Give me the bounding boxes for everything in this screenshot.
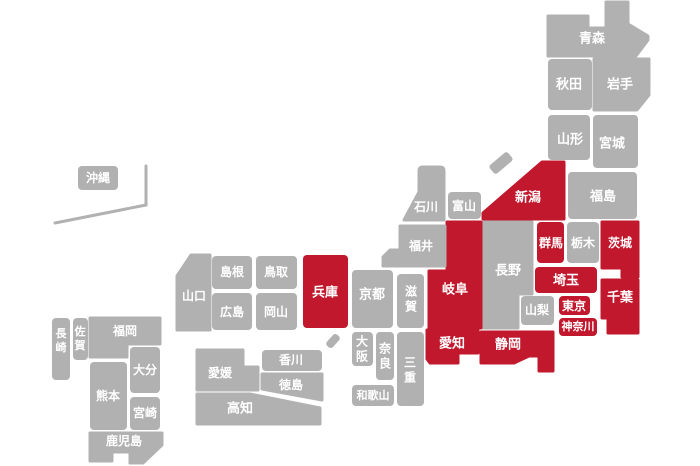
prefecture-label-kanagawa: 神奈川	[562, 319, 595, 333]
prefecture-label-oita: 大分	[133, 362, 157, 377]
prefecture-group-toyama: 富山	[448, 192, 481, 219]
prefecture-group-saitama: 埼玉	[535, 267, 597, 293]
prefecture-group-chiba: 千葉	[602, 280, 638, 333]
prefecture-group-hiroshima: 広島	[212, 293, 252, 330]
prefecture-group-kanagawa: 神奈川	[559, 318, 597, 336]
prefecture-group-kumamoto: 熊本	[90, 362, 127, 430]
prefecture-group-nagasaki: 長崎	[52, 318, 70, 380]
prefecture-label-yamagata: 山形	[557, 132, 583, 147]
prefecture-label-nagano: 長野	[495, 263, 521, 278]
prefecture-label-ishikawa: 石川	[413, 200, 438, 214]
prefecture-group-ehime: 愛媛	[197, 350, 258, 390]
prefecture-label-miyagi: 宮城	[599, 136, 625, 151]
prefecture-label-hiroshima: 広島	[220, 304, 244, 319]
prefecture-label-kagawa: 香川	[278, 352, 303, 367]
prefecture-group-shiga: 滋賀	[397, 274, 424, 328]
sado-island	[488, 151, 513, 175]
prefecture-label-kochi: 高知	[227, 401, 253, 416]
prefecture-group-miyazaki: 宮崎	[130, 397, 160, 430]
prefecture-group-gunma: 群馬	[537, 222, 564, 263]
prefecture-group-tokyo: 東京	[559, 296, 590, 315]
prefecture-group-akita: 秋田	[548, 59, 592, 110]
prefecture-group-kyoto: 京都	[352, 270, 393, 328]
prefecture-label-shizuoka: 静岡	[495, 337, 521, 352]
prefecture-group-ishikawa: 石川	[404, 167, 444, 220]
prefecture-label-gunma: 群馬	[538, 235, 563, 250]
prefecture-label-hyogo: 兵庫	[312, 285, 338, 300]
prefecture-aomori[interactable]	[548, 2, 648, 56]
prefecture-group-okinawa: 沖縄	[78, 166, 118, 190]
prefecture-label-wakayama: 和歌山	[357, 388, 390, 402]
prefecture-label-akita: 秋田	[556, 77, 582, 92]
prefecture-group-yamagata: 山形	[548, 115, 590, 160]
prefecture-group-fukushima: 福島	[568, 172, 637, 219]
prefecture-label-kagoshima: 鹿児島	[106, 433, 142, 448]
prefecture-group-miyagi: 宮城	[593, 115, 638, 168]
prefecture-group-mie: 三重	[397, 332, 424, 406]
prefecture-label-fukuoka: 福岡	[112, 323, 137, 338]
prefecture-group-shimane: 島根	[212, 256, 252, 289]
prefecture-label-chiba: 千葉	[607, 290, 634, 305]
prefecture-label-okinawa: 沖縄	[86, 170, 110, 185]
prefecture-label-shimane: 島根	[220, 264, 244, 279]
prefecture-label-toyama: 富山	[452, 198, 476, 213]
prefecture-label-tottori: 鳥取	[264, 264, 288, 279]
prefecture-label-gifu: 岐阜	[442, 282, 468, 297]
prefecture-saga[interactable]	[73, 318, 88, 360]
prefecture-label-yamanashi: 山梨	[525, 302, 549, 317]
prefecture-label-kumamoto: 熊本	[96, 388, 120, 403]
prefecture-group-tokushima: 徳島	[262, 374, 322, 400]
prefecture-kochi[interactable]	[197, 394, 320, 424]
prefecture-group-osaka: 大阪	[352, 332, 373, 366]
prefecture-group-yamanashi: 山梨	[521, 296, 554, 325]
prefecture-group-tottori: 鳥取	[256, 256, 297, 289]
prefecture-group-shizuoka: 静岡	[481, 332, 553, 371]
prefecture-label-tochigi: 栃木	[571, 235, 596, 250]
prefecture-label-miyazaki: 宮崎	[133, 405, 157, 420]
prefecture-group-kochi: 高知	[197, 394, 320, 424]
prefecture-group-kagawa: 香川	[262, 350, 322, 371]
prefecture-group-aomori: 青森	[548, 2, 648, 56]
prefecture-label-yamaguchi: 山口	[182, 288, 206, 303]
prefecture-group-saga: 佐賀	[73, 318, 88, 360]
prefecture-group-tochigi: 栃木	[567, 222, 599, 263]
prefecture-group-oita: 大分	[130, 347, 160, 393]
prefecture-label-tokyo: 東京	[562, 298, 586, 313]
prefecture-chiba[interactable]	[602, 280, 638, 333]
prefecture-label-niigata: 新潟	[515, 190, 541, 205]
prefecture-group-ibaraki: 茨城	[602, 222, 638, 277]
prefecture-label-fukushima: 福島	[589, 189, 616, 204]
prefecture-group-hyogo: 兵庫	[303, 255, 348, 328]
prefecture-label-fukui: 福井	[408, 238, 433, 253]
prefecture-label-ehime: 愛媛	[208, 365, 233, 380]
prefecture-label-saitama: 埼玉	[553, 273, 579, 288]
prefecture-label-iwate: 岩手	[606, 77, 633, 92]
prefecture-label-tokushima: 徳島	[278, 377, 303, 392]
prefecture-group-wakayama: 和歌山	[352, 385, 394, 406]
prefecture-label-kyoto: 京都	[359, 287, 385, 302]
prefecture-label-okayama: 岡山	[264, 304, 288, 319]
prefecture-group-aichi: 愛知	[427, 330, 478, 363]
prefecture-group-nara: 奈良	[376, 332, 394, 380]
prefecture-label-aomori: 青森	[579, 31, 606, 46]
map-canvas: 青森秋田岩手山形宮城福島新潟群馬栃木茨城埼玉東京神奈川千葉山梨長野岐阜静岡愛知富…	[0, 0, 700, 466]
prefecture-group-fukui: 福井	[383, 226, 445, 266]
prefecture-group-iwate: 岩手	[594, 59, 649, 110]
prefecture-label-mie: 三重	[404, 356, 416, 385]
prefecture-group-okayama: 岡山	[256, 293, 297, 330]
prefecture-group-yamaguchi: 山口	[177, 255, 210, 330]
awaji-island	[325, 333, 341, 350]
japan-prefecture-map: 青森秋田岩手山形宮城福島新潟群馬栃木茨城埼玉東京神奈川千葉山梨長野岐阜静岡愛知富…	[0, 0, 700, 466]
prefecture-group-kagoshima: 鹿児島	[90, 433, 162, 463]
prefecture-label-ibaraki: 茨城	[608, 235, 632, 250]
prefecture-label-aichi: 愛知	[439, 336, 465, 351]
